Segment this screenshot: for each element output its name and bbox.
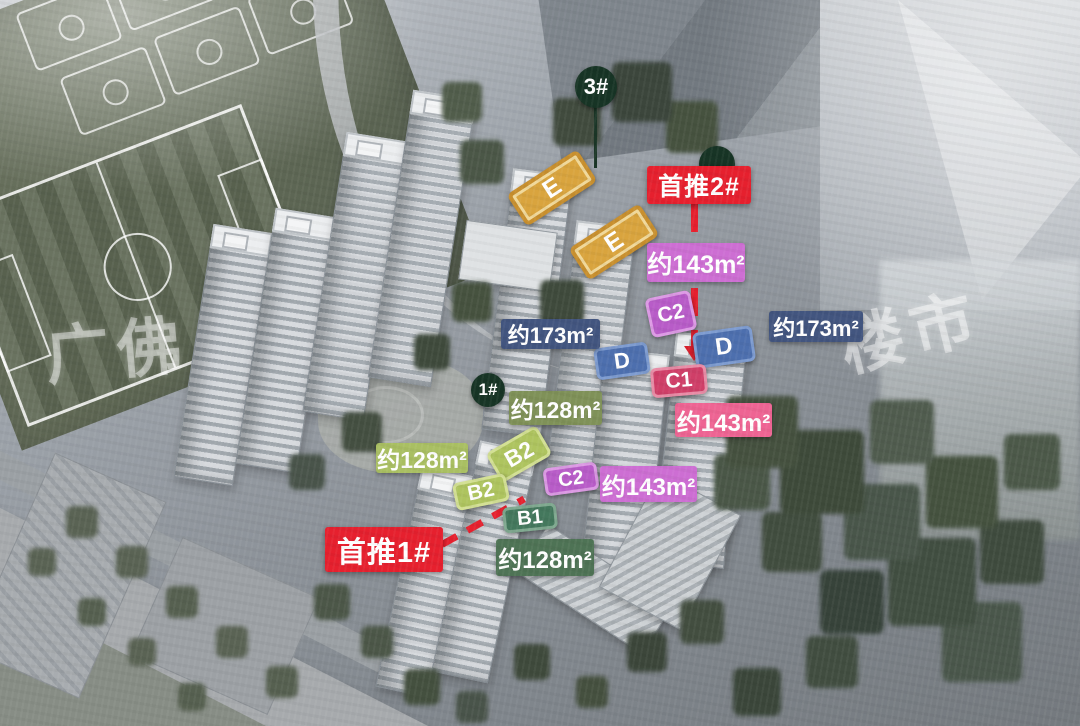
area-label-173-right: 约173m² [769, 311, 863, 342]
marker-3-stem-line [594, 106, 597, 168]
area-label-128-olive: 约128m² [509, 391, 602, 425]
watermark-left: 广佛 [41, 294, 192, 398]
haze-facet [850, 0, 1080, 300]
rooftop-tag-C2-top: C2 [644, 290, 697, 339]
building-marker-3: 3# [575, 66, 617, 108]
area-label-143-right: 约143m² [675, 403, 772, 437]
area-label-173-left: 约173m² [501, 319, 600, 349]
building-marker-1: 1# [471, 373, 505, 407]
first-push-2-callout: 首推2# [647, 166, 751, 204]
area-label-143-mid: 约143m² [600, 466, 697, 502]
rooftop-tag-D-right: D [692, 325, 756, 369]
first-push-1-callout: 首推1# [325, 527, 443, 572]
basketball-court [153, 5, 261, 96]
area-label-128-dark-green: 约128m² [496, 539, 594, 576]
basketball-court [59, 46, 167, 137]
aerial-masterplan-image: 广佛 楼市 3# 1# 首推2# 首推1# 约143m² 约173m² 约173… [0, 0, 1080, 726]
podium [458, 220, 557, 292]
area-label-128-yellow-green: 约128m² [376, 443, 468, 473]
hazy-city-blocks [820, 0, 1080, 310]
rooftop-tag-C1: C1 [650, 364, 708, 399]
area-label-143-top: 约143m² [647, 243, 745, 282]
tree-canopy [0, 0, 4, 4]
